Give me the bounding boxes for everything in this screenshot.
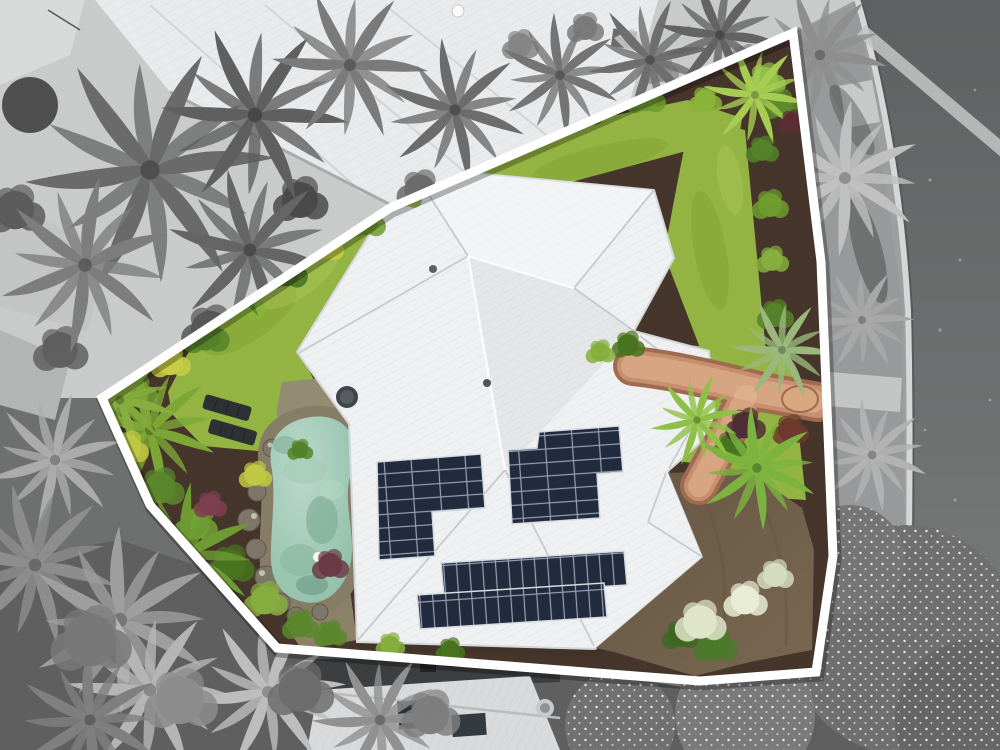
path-crossover-pad: [828, 372, 902, 412]
roof-vent: [429, 265, 437, 273]
roof-vent: [483, 379, 491, 387]
satellite-dish-inner: [340, 390, 354, 404]
aerial-drone-photo: [0, 0, 1000, 750]
aerial-photo-frame: [0, 0, 1000, 750]
roof-vent-dot: [452, 5, 464, 17]
ac-unit-fan: [540, 703, 550, 713]
gray-shrub: [2, 77, 58, 133]
